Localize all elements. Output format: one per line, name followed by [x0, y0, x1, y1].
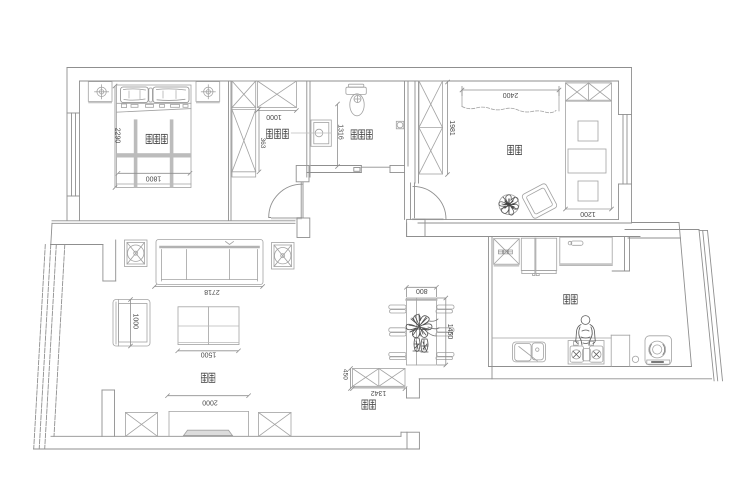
svg-text:1000: 1000 [132, 314, 139, 330]
svg-text:1500: 1500 [201, 351, 217, 358]
svg-text:450: 450 [341, 369, 348, 380]
svg-text:1450: 1450 [446, 324, 453, 340]
svg-text:2290: 2290 [113, 128, 120, 144]
svg-text:2400: 2400 [503, 91, 519, 98]
svg-text:1342: 1342 [371, 389, 387, 396]
svg-text:1200: 1200 [580, 210, 596, 217]
svg-text:800: 800 [416, 287, 428, 294]
svg-text:363: 363 [259, 138, 266, 149]
svg-text:1000: 1000 [266, 113, 282, 120]
svg-text:1316: 1316 [337, 124, 344, 140]
svg-text:1800: 1800 [146, 175, 162, 182]
svg-text:2000: 2000 [202, 399, 218, 406]
svg-text:2718: 2718 [204, 288, 220, 295]
svg-text:1981: 1981 [448, 120, 455, 136]
